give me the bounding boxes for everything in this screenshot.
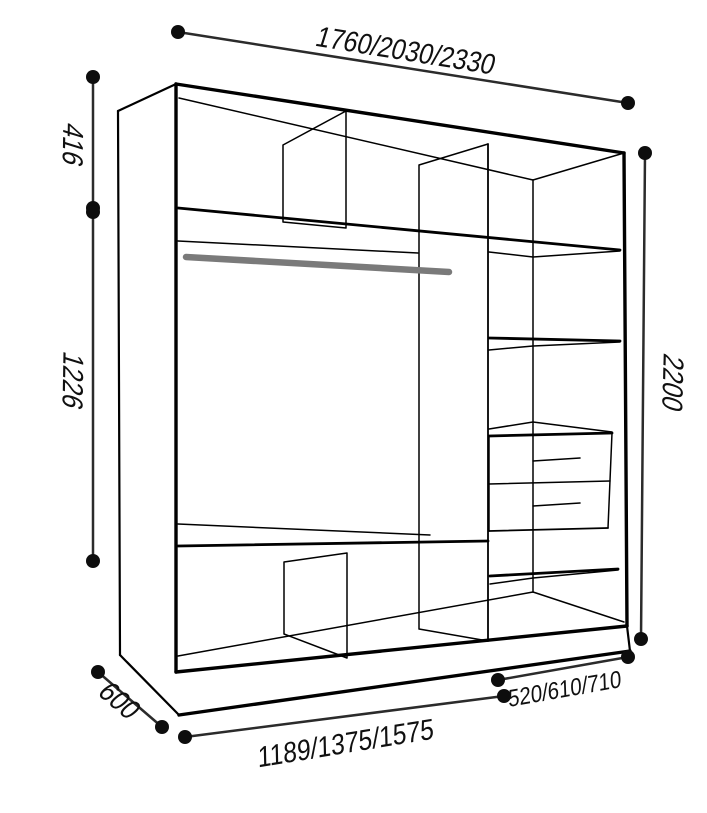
dimension-dot bbox=[621, 96, 635, 110]
dimension-dot bbox=[491, 673, 505, 687]
dimension-dot bbox=[86, 70, 100, 84]
dimension-dot bbox=[178, 730, 192, 744]
diagram-page: 1760/2030/2330 416 1226 2200 600 1189/13… bbox=[0, 0, 707, 813]
dimension-dot bbox=[86, 554, 100, 568]
dim-label-middle-section-height: 1226 bbox=[56, 348, 89, 413]
dimension-dot bbox=[634, 632, 648, 646]
dimension-dot bbox=[638, 146, 652, 160]
dimension-dot bbox=[91, 665, 105, 679]
dimension-dot bbox=[171, 25, 185, 39]
dim-label-total-height: 2200 bbox=[656, 350, 690, 416]
dimension-dot bbox=[86, 205, 100, 219]
wardrobe-diagram: 1760/2030/2330 416 1226 2200 600 1189/13… bbox=[0, 0, 707, 813]
dimension-dot bbox=[621, 650, 635, 664]
dimension-dot bbox=[155, 720, 169, 734]
